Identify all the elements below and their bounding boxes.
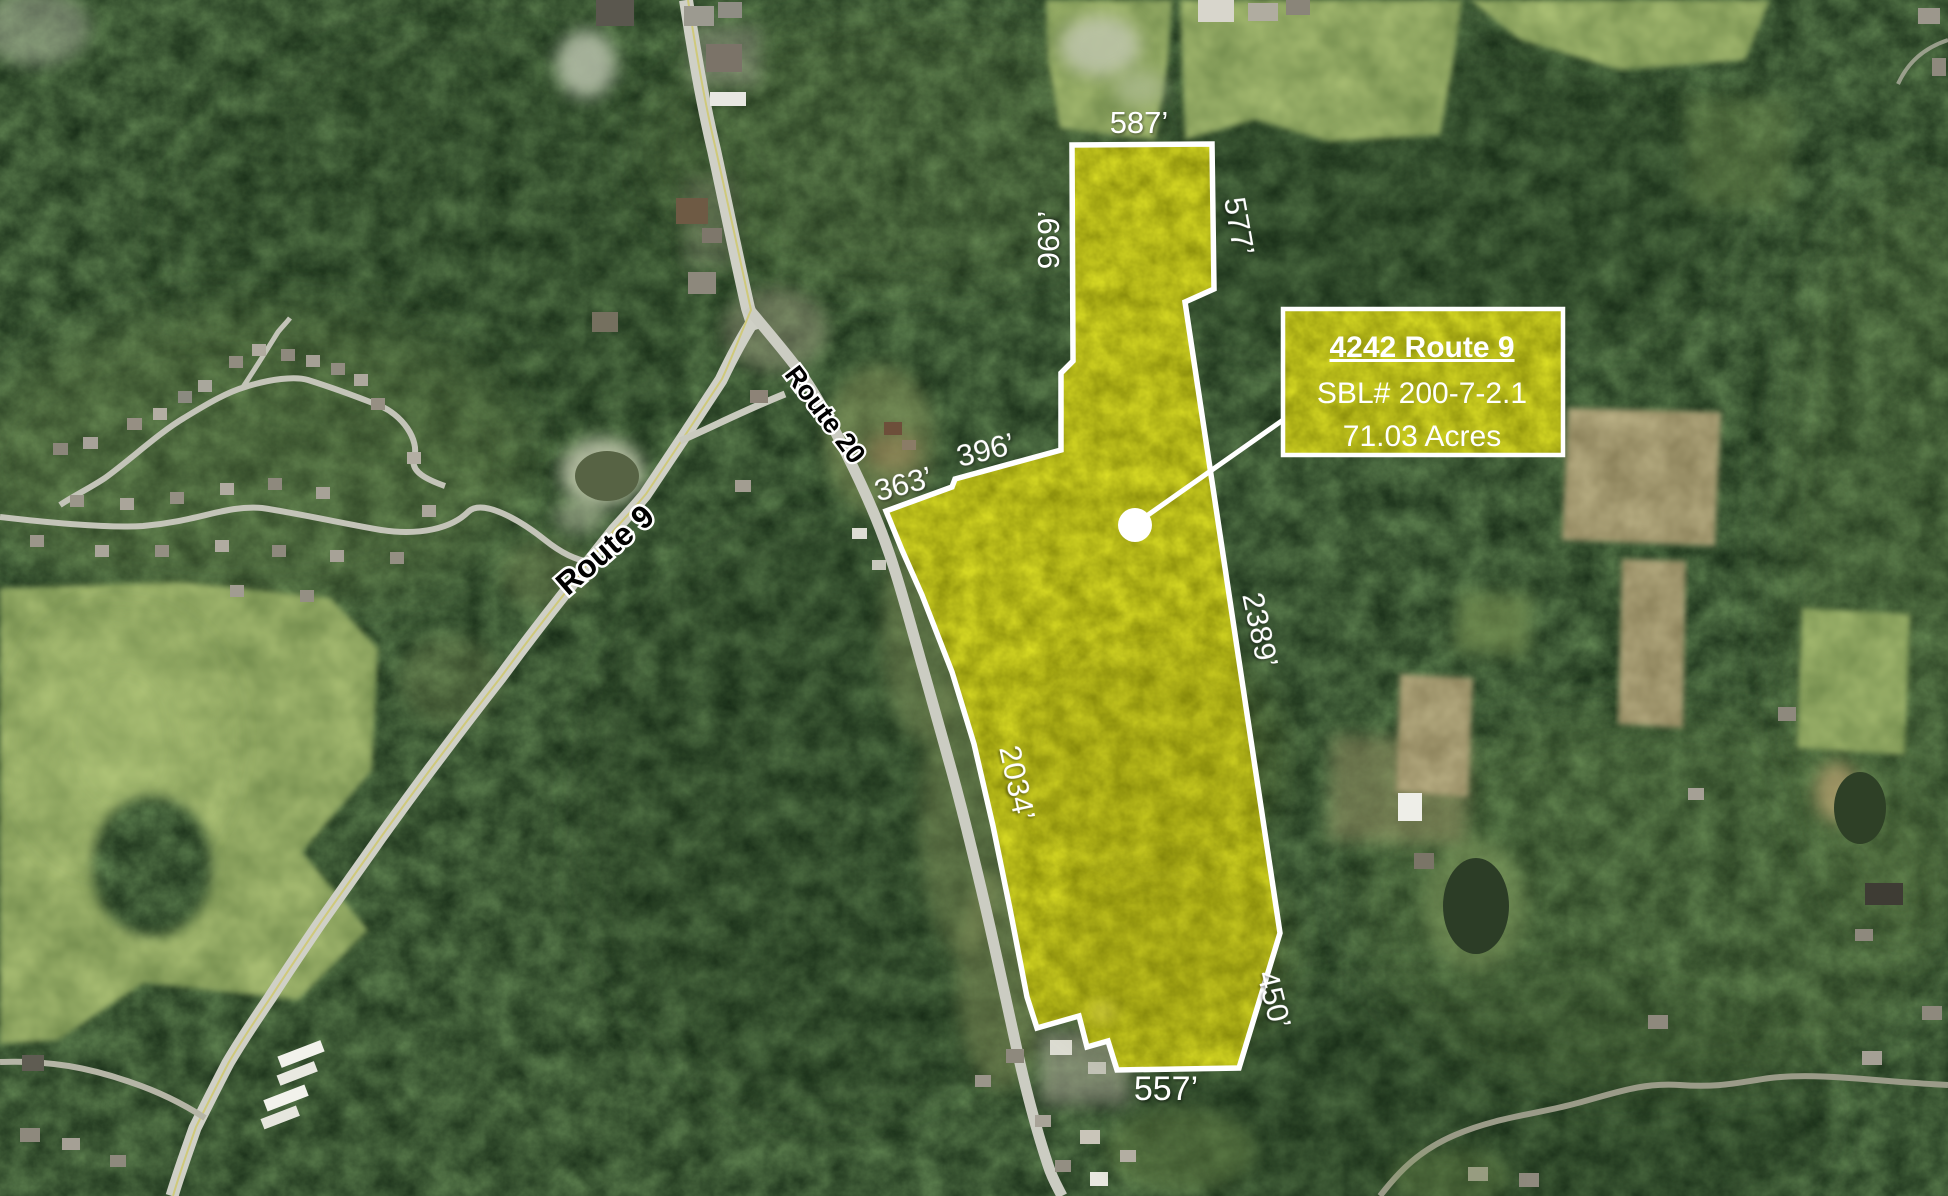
svg-text:557’: 557’ xyxy=(1134,1070,1198,1108)
svg-text:71.03 Acres: 71.03 Acres xyxy=(1343,420,1501,453)
svg-text:969’: 969’ xyxy=(1031,211,1066,270)
svg-text:587’: 587’ xyxy=(1110,105,1169,140)
svg-text:SBL# 200-7-2.1: SBL# 200-7-2.1 xyxy=(1317,377,1527,410)
svg-text:4242 Route 9: 4242 Route 9 xyxy=(1329,331,1514,364)
